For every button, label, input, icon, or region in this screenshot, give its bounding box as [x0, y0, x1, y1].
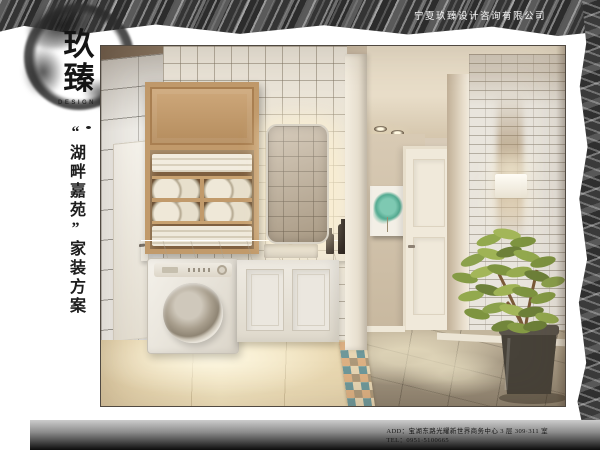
- plant-pot: [499, 325, 559, 394]
- washer-display: [162, 267, 178, 273]
- door-panel-bottom: [413, 237, 445, 315]
- cabinet-open-shelves: [150, 150, 254, 249]
- door-panel-top: [413, 159, 445, 227]
- logo-subtitle: DESIGN: [58, 100, 96, 106]
- washer-door: [163, 283, 223, 343]
- footer-address: ADD：宝湖东路光耀新世界商务中心 3 层 309·311 室: [386, 427, 548, 436]
- company-name: 宁夏玖臻设计咨询有限公司: [414, 8, 546, 22]
- footer-telephone: TEL：0951·5100665: [386, 436, 548, 445]
- vanity-panel: [246, 269, 284, 331]
- plant-foliage: [451, 227, 565, 335]
- towel-cubby: [204, 179, 252, 198]
- towel-cubby: [152, 202, 200, 221]
- partition-wall: [345, 54, 367, 350]
- design-board: 宁夏玖臻设计咨询有限公司 玖 臻 DESIGN 玖 臻 “湖畔嘉苑”家装方案: [0, 0, 600, 450]
- right-brush-band: [577, 0, 600, 432]
- vanity-cabinet: [237, 260, 339, 342]
- storage-cabinet: [145, 82, 259, 254]
- wall-sconce: [495, 174, 527, 198]
- wall-art-stem: [387, 217, 388, 232]
- interior-photo: [100, 45, 566, 407]
- ink-blob: [22, 46, 64, 98]
- wall-art: [370, 186, 406, 236]
- vanity-panel: [292, 269, 330, 331]
- recessed-spotlight: [374, 126, 387, 132]
- door-handle: [408, 245, 415, 248]
- potted-plant: [449, 214, 565, 406]
- washing-machine: [147, 258, 239, 354]
- washer-control-panel: [154, 263, 232, 277]
- footer-contact: ADD：宝湖东路光耀新世界商务中心 3 层 309·311 室 TEL：0951…: [386, 427, 548, 445]
- logo-character-bottom: 臻: [60, 62, 98, 96]
- towel-cubby: [152, 179, 200, 198]
- cabinet-door-panel: [150, 87, 254, 145]
- project-title: “湖畔嘉苑”家装方案: [63, 124, 87, 394]
- baseboard: [367, 326, 405, 332]
- sink-basin: [264, 244, 318, 258]
- towel-cubby: [204, 202, 252, 221]
- washer-buttons: [188, 268, 212, 272]
- wall-art-flower: [373, 189, 403, 233]
- logo-characters: 玖 臻: [60, 28, 98, 96]
- towel-stack: [152, 154, 252, 172]
- washer-knob: [217, 265, 227, 275]
- logo-character-top: 玖: [60, 28, 98, 62]
- towel-cubbies: [152, 176, 252, 224]
- mirror: [266, 124, 329, 244]
